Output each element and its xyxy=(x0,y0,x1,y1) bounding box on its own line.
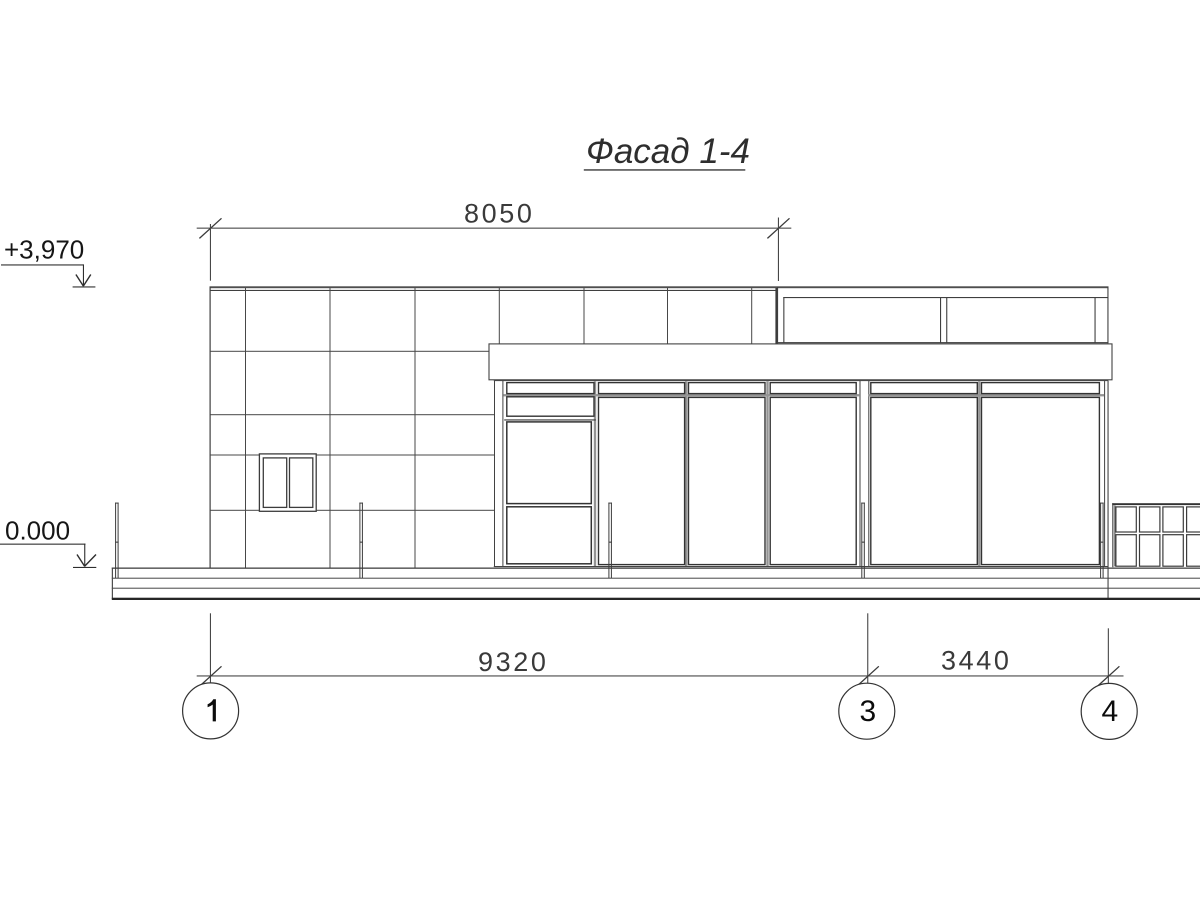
svg-text:8050: 8050 xyxy=(464,199,534,229)
svg-text:4: 4 xyxy=(1102,695,1119,728)
svg-text:Фасад 1-4: Фасад 1-4 xyxy=(586,132,750,171)
svg-text:9320: 9320 xyxy=(478,647,548,677)
svg-text:0.000: 0.000 xyxy=(5,516,70,546)
svg-text:+3,970: +3,970 xyxy=(4,235,84,265)
svg-text:3: 3 xyxy=(860,695,877,728)
svg-text:3440: 3440 xyxy=(941,646,1011,676)
